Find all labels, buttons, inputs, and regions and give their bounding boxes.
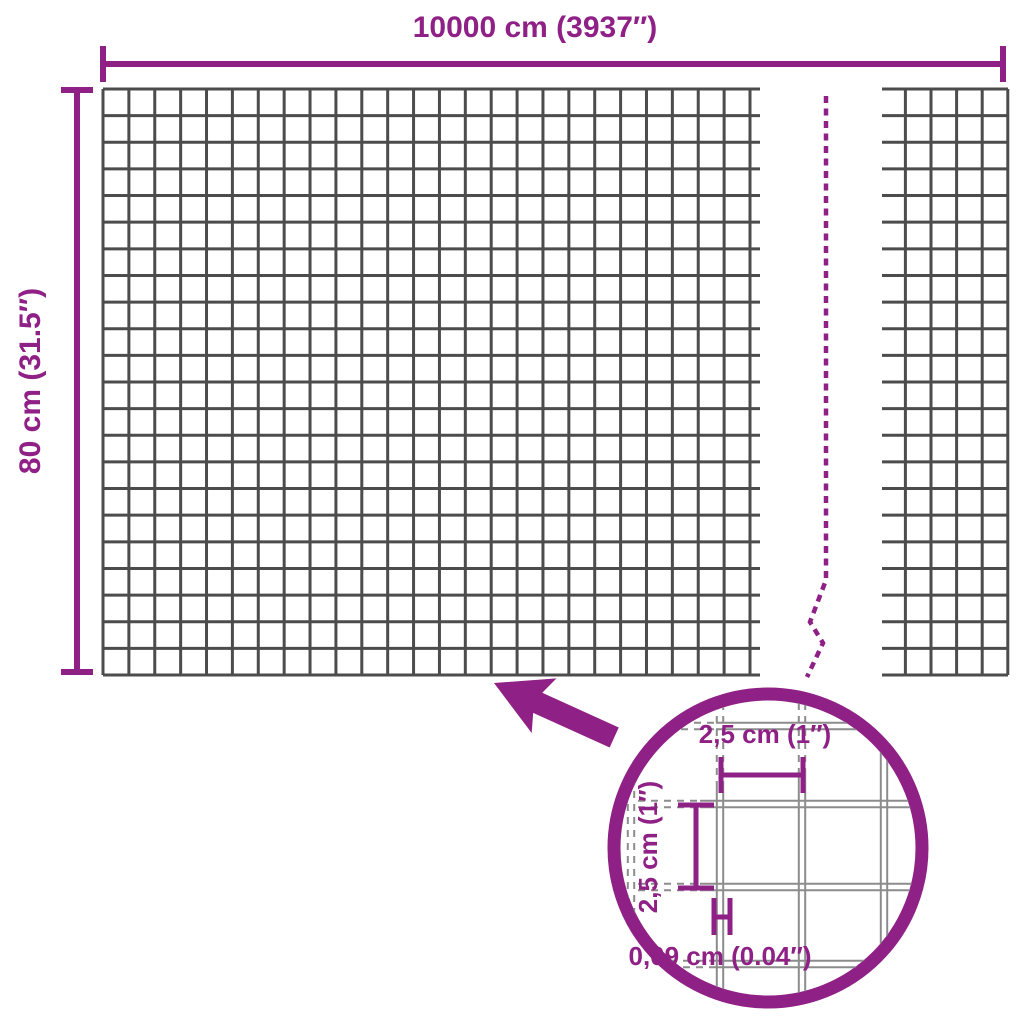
wire-mesh-dimension-diagram: 10000 cm (3937″) 80 cm (31.5″) 2,5 cm (1… xyxy=(0,0,1024,1024)
mesh-grid-right xyxy=(882,89,1008,675)
height-dimension-label: 80 cm (31.5″) xyxy=(14,288,47,474)
wire-thickness-label: 0,09 cm (0.04″) xyxy=(628,941,811,971)
zoom-arrow xyxy=(482,656,627,765)
zoom-arrow-shape xyxy=(482,656,627,765)
width-dimension-label: 10000 cm (3937″) xyxy=(413,11,658,44)
detail-circle: 2,5 cm (1″) 2,5 cm (1″) 0,09 cm (0.04″) xyxy=(614,690,936,1004)
mesh-grid-main xyxy=(103,89,760,675)
mesh-cell-height-label: 2,5 cm (1″) xyxy=(633,781,663,913)
width-dimension: 10000 cm (3937″) xyxy=(103,11,1003,82)
mesh-cell-width-label: 2,5 cm (1″) xyxy=(699,719,831,749)
break-line xyxy=(807,96,826,677)
height-dimension: 80 cm (31.5″) xyxy=(14,90,93,672)
